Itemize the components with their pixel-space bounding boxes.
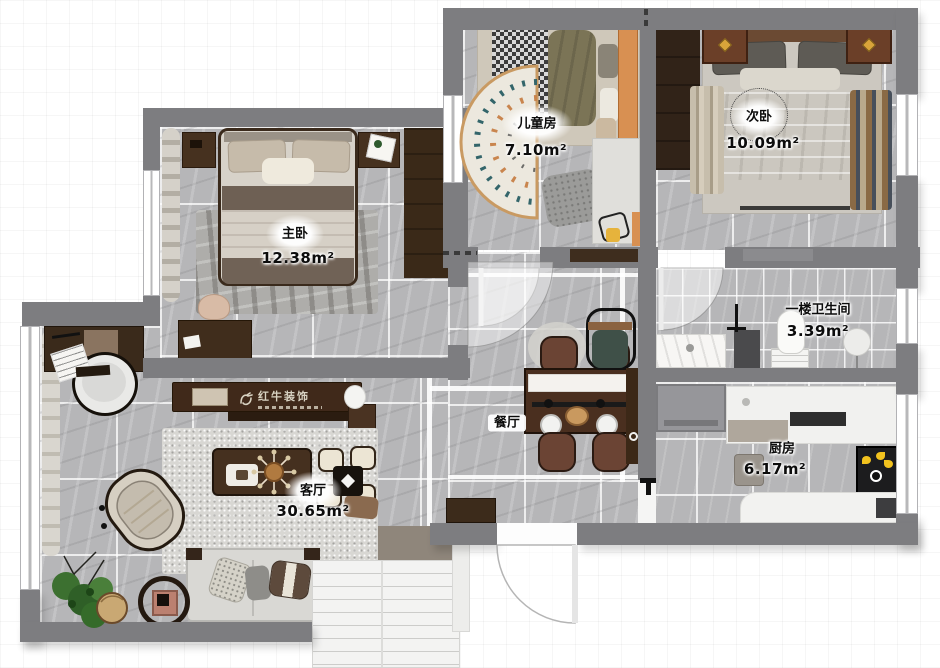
tv-stand-decor xyxy=(192,388,228,406)
room-area-master: 12.38m² xyxy=(261,249,334,267)
dining-chair xyxy=(538,432,576,472)
room-area-living: 30.65m² xyxy=(276,502,349,520)
wall-right xyxy=(896,8,918,94)
wall-bath-kitchen-divider xyxy=(655,368,898,382)
wall-bedroom-divider xyxy=(640,28,656,252)
stove-knob-yellow xyxy=(876,452,885,460)
brand-tagline-decor xyxy=(258,406,322,409)
dining-chair xyxy=(592,432,630,472)
kitchen-door-icon xyxy=(646,483,651,495)
sofa-corner xyxy=(304,548,320,560)
master-nightstand-plant xyxy=(374,140,382,148)
baby-high-chair-seat xyxy=(592,330,628,368)
second-small-pillows xyxy=(740,68,840,90)
brand-logo: 红牛装饰 xyxy=(238,388,322,409)
window-bathroom xyxy=(896,288,918,344)
children-pillow-white xyxy=(600,88,618,122)
room-label-kitchen: 厨房 xyxy=(769,438,795,457)
kitchen-cooktop-black xyxy=(790,412,846,426)
room-area-second: 10.09m² xyxy=(726,134,799,152)
second-door-threshold xyxy=(743,249,813,261)
opening-marker xyxy=(644,9,648,28)
entry-door-gap xyxy=(497,523,577,545)
window-kitchen xyxy=(896,394,918,514)
stove-knob-yellow xyxy=(862,456,871,464)
master-wardrobe xyxy=(404,128,448,278)
kitchen-counter-bottom xyxy=(740,492,898,523)
wall-right xyxy=(896,176,918,288)
window-children-room xyxy=(443,95,463,183)
entry-shoe-cabinet xyxy=(446,498,496,523)
master-small-pillow xyxy=(262,158,314,184)
wall-master-left xyxy=(143,108,160,170)
room-label-master: 主卧 xyxy=(266,223,324,242)
door-arc-entry xyxy=(497,545,575,623)
tv-speaker xyxy=(344,385,366,409)
wall-children-left xyxy=(443,8,463,95)
sofa-corner xyxy=(186,548,202,560)
brand-name: 红牛装饰 xyxy=(258,388,322,404)
side-table-cube-top xyxy=(157,594,169,606)
room-label-children: 儿童房 xyxy=(501,113,572,132)
dining-rail-knob xyxy=(596,399,605,408)
wall-nook-top xyxy=(22,302,160,326)
room-label-bathroom: 一楼卫生间 xyxy=(785,299,850,318)
dining-sideboard-knob xyxy=(629,432,638,441)
wall-bottom-entry-left xyxy=(430,523,497,545)
bathroom-bin xyxy=(734,330,760,368)
staircase xyxy=(312,560,460,668)
stair-side xyxy=(452,536,470,632)
wall-top xyxy=(443,8,918,30)
room-area-kitchen: 6.17m² xyxy=(744,460,806,478)
master-nightstand-item xyxy=(190,140,202,148)
dining-rail-knob xyxy=(544,399,553,408)
children-bed-frame-orange xyxy=(618,28,638,146)
room-label-living: 客厅 xyxy=(284,480,342,499)
bathroom-faucet xyxy=(686,344,694,352)
opening-marker xyxy=(443,251,477,255)
master-nightstand-left xyxy=(182,132,216,168)
window-living-left xyxy=(20,326,40,590)
floor-seam xyxy=(448,475,648,479)
room-area-bathroom: 3.39m² xyxy=(787,322,849,340)
children-desk-orange-strip xyxy=(632,212,640,246)
second-rug-left xyxy=(690,86,724,194)
wall-living-bottom xyxy=(20,622,312,642)
second-bed-foot-line xyxy=(740,206,850,210)
wall-hall-kitchen-divider xyxy=(638,252,656,480)
dining-runner xyxy=(528,374,638,392)
children-pillow-gray xyxy=(598,44,618,78)
stove-burner xyxy=(870,470,882,482)
window-master-bedroom xyxy=(143,170,160,296)
washing-machine-door xyxy=(664,420,718,426)
sofa-pillow-brown xyxy=(268,559,313,600)
sofa-pillow-gray xyxy=(244,565,271,601)
floor-seam xyxy=(463,273,638,277)
wall-living-master-divider xyxy=(143,358,470,378)
master-curtain xyxy=(162,128,180,302)
tv-stand-shelf xyxy=(228,412,354,421)
baby-high-chair-tray xyxy=(588,322,632,330)
room-area-children: 7.10m² xyxy=(505,141,567,159)
master-nightstand-paper xyxy=(366,134,396,163)
master-blanket-band xyxy=(222,186,354,210)
master-dresser-stool xyxy=(198,294,230,320)
dining-food xyxy=(565,406,589,426)
wall-right xyxy=(896,344,918,394)
second-rug-right xyxy=(850,90,892,210)
floor-plan-canvas: 红牛装饰 xyxy=(0,0,940,668)
bathroom-partition-tick xyxy=(727,327,746,330)
coffee-table-tray-item xyxy=(236,470,248,480)
stove-knob-yellow xyxy=(884,460,893,468)
kitchen-sink xyxy=(742,398,750,406)
children-toy-yellow xyxy=(606,228,620,242)
wall-master-top xyxy=(143,108,468,127)
bull-icon xyxy=(238,391,254,407)
window-second-bedroom xyxy=(896,94,918,176)
children-door-threshold xyxy=(570,249,638,262)
wall-bottom-kitchen xyxy=(577,523,918,545)
kitchen-counter-item xyxy=(876,498,896,518)
room-label-dining: 餐厅 xyxy=(488,412,526,431)
room-label-second: 次卧 xyxy=(730,106,788,125)
